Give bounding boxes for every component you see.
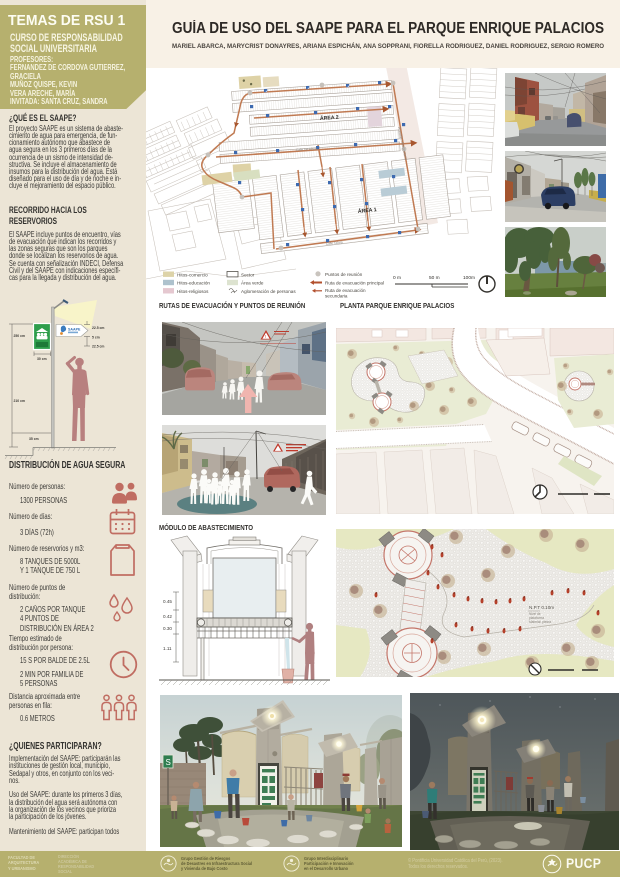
svg-text:ÁREA 2: ÁREA 2 xyxy=(320,114,339,122)
svg-text:⬤: ⬤ xyxy=(272,751,278,757)
svg-text:S: S xyxy=(166,758,171,767)
svg-text:Aglomeración de personas: Aglomeración de personas xyxy=(241,289,296,294)
svg-text:Ruta de evacuación principal: Ruta de evacuación principal xyxy=(325,280,384,285)
svg-text:50 m: 50 m xyxy=(429,275,440,281)
svg-text:Hitos-religiosos: Hitos-religiosos xyxy=(177,289,209,294)
svg-text:Puntos de reunión: Puntos de reunión xyxy=(325,272,363,277)
svg-text:N.P.T 0.10m: N.P.T 0.10m xyxy=(529,605,554,610)
svg-text:5 cm: 5 cm xyxy=(92,336,100,340)
svg-text:100m: 100m xyxy=(463,275,475,281)
svg-text:0.42: 0.42 xyxy=(163,614,172,619)
svg-text:0.30: 0.30 xyxy=(163,626,172,631)
svg-text:SAAPE: SAAPE xyxy=(68,328,81,332)
svg-text:Sector: Sector xyxy=(241,272,255,277)
svg-text:210 cm: 210 cm xyxy=(14,399,26,403)
svg-text:Material: piedra: Material: piedra xyxy=(529,620,551,624)
svg-text:Hitos-educación: Hitos-educación xyxy=(177,281,210,286)
svg-text:35 cm: 35 cm xyxy=(29,437,39,441)
svg-text:secundaria: secundaria xyxy=(325,294,348,299)
svg-text:1.11: 1.11 xyxy=(163,646,172,651)
svg-text:Hitos-comercio: Hitos-comercio xyxy=(177,272,208,277)
svg-text:Ruta de evacuación: Ruta de evacuación xyxy=(325,288,366,293)
svg-text:Área verde: Área verde xyxy=(241,280,264,286)
svg-text:22.5 cm: 22.5 cm xyxy=(92,345,104,349)
svg-text:250 cm: 250 cm xyxy=(14,334,26,338)
svg-text:0 m: 0 m xyxy=(393,275,401,281)
svg-text:0.45: 0.45 xyxy=(163,599,172,604)
svg-text:30 cm: 30 cm xyxy=(37,357,47,361)
svg-text:22.5 cm: 22.5 cm xyxy=(92,326,104,330)
svg-text:!: ! xyxy=(265,334,266,339)
